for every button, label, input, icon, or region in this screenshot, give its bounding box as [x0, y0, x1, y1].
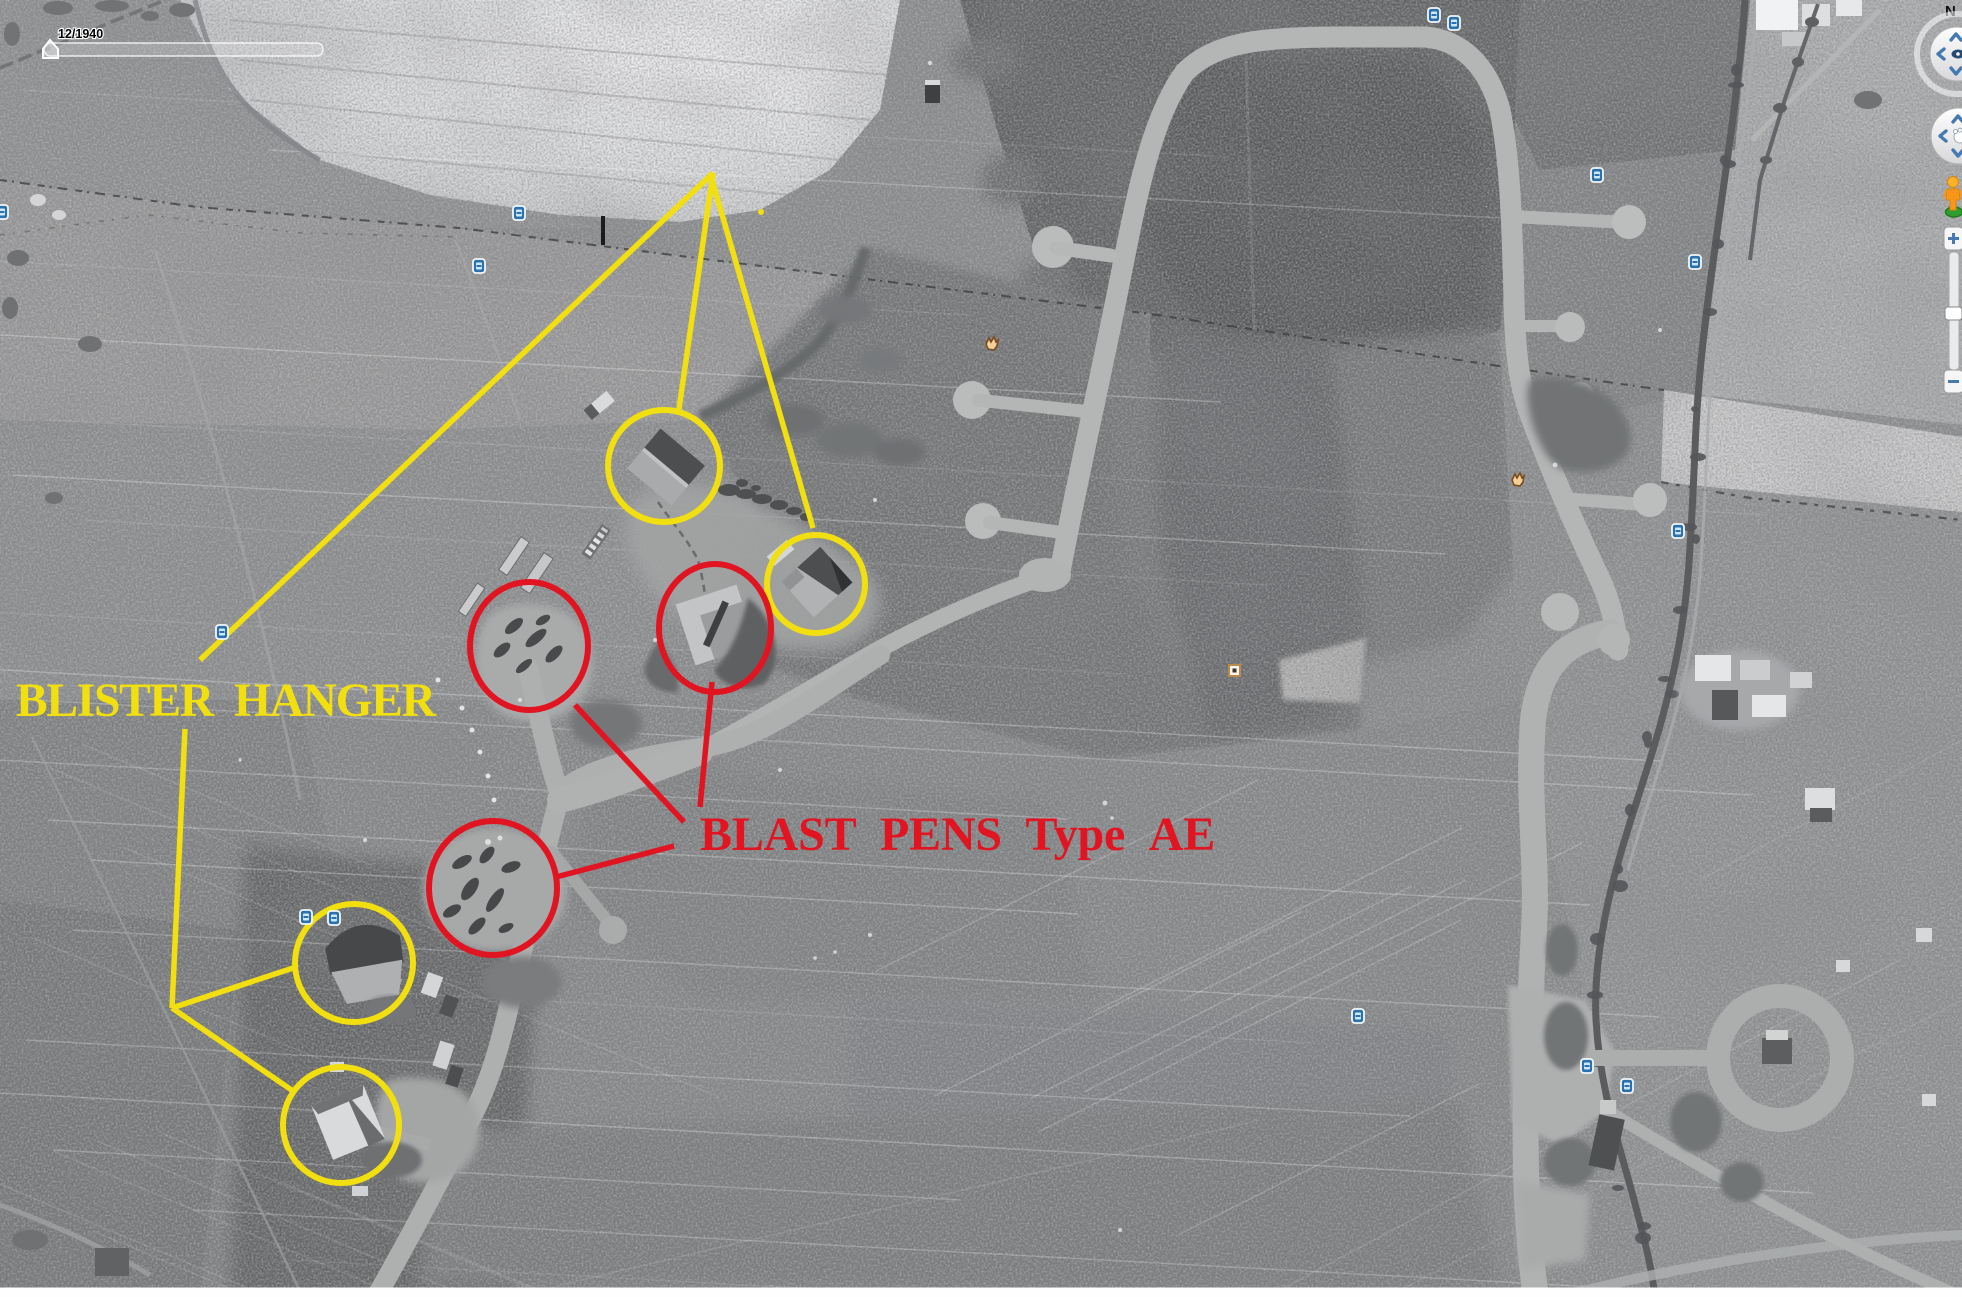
svg-text:BLISTER HANGER: BLISTER HANGER — [16, 675, 437, 727]
svg-text:BLAST PENS Type AE: BLAST PENS Type AE — [700, 808, 1215, 861]
svg-text:12/1940: 12/1940 — [58, 27, 103, 41]
